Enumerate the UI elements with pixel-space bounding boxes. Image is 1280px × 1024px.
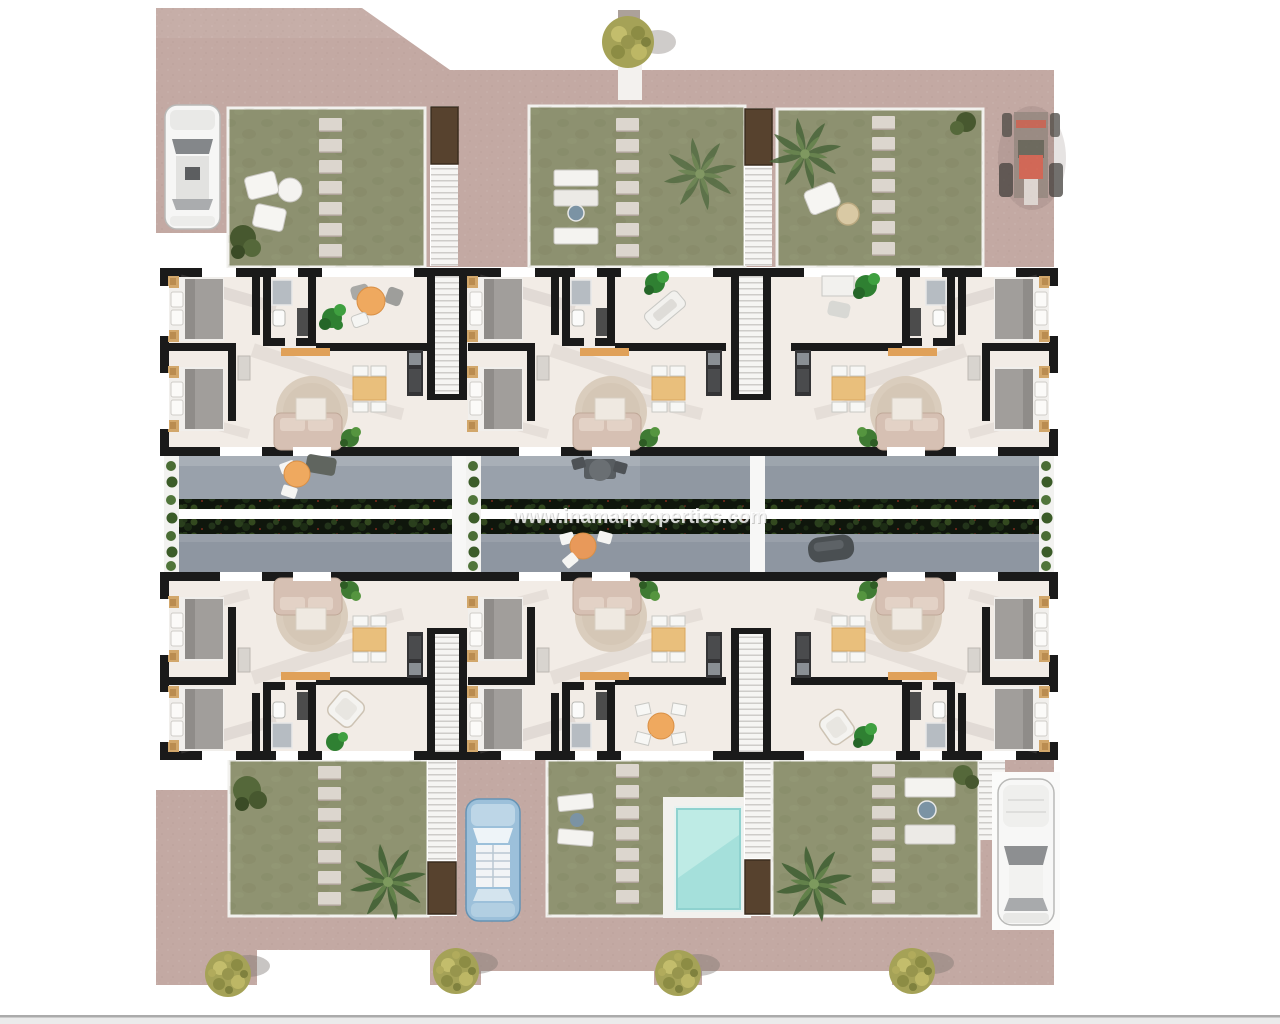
svg-text:www.inamarproperties.com: www.inamarproperties.com <box>512 506 767 528</box>
